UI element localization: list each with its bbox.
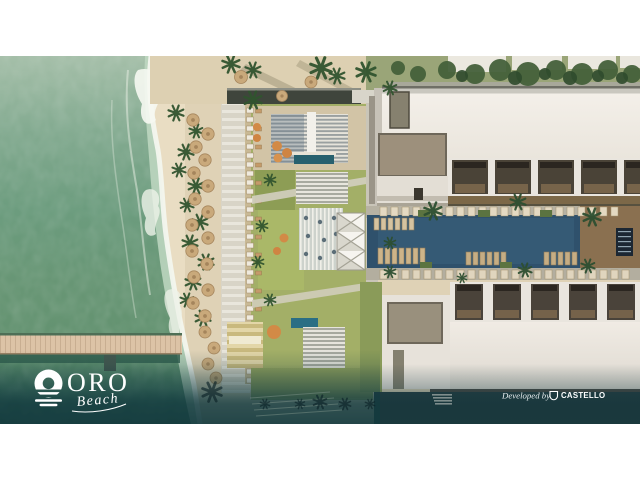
- svg-text:Developed by: Developed by: [501, 391, 550, 401]
- svg-text:CASTELLO: CASTELLO: [561, 391, 605, 400]
